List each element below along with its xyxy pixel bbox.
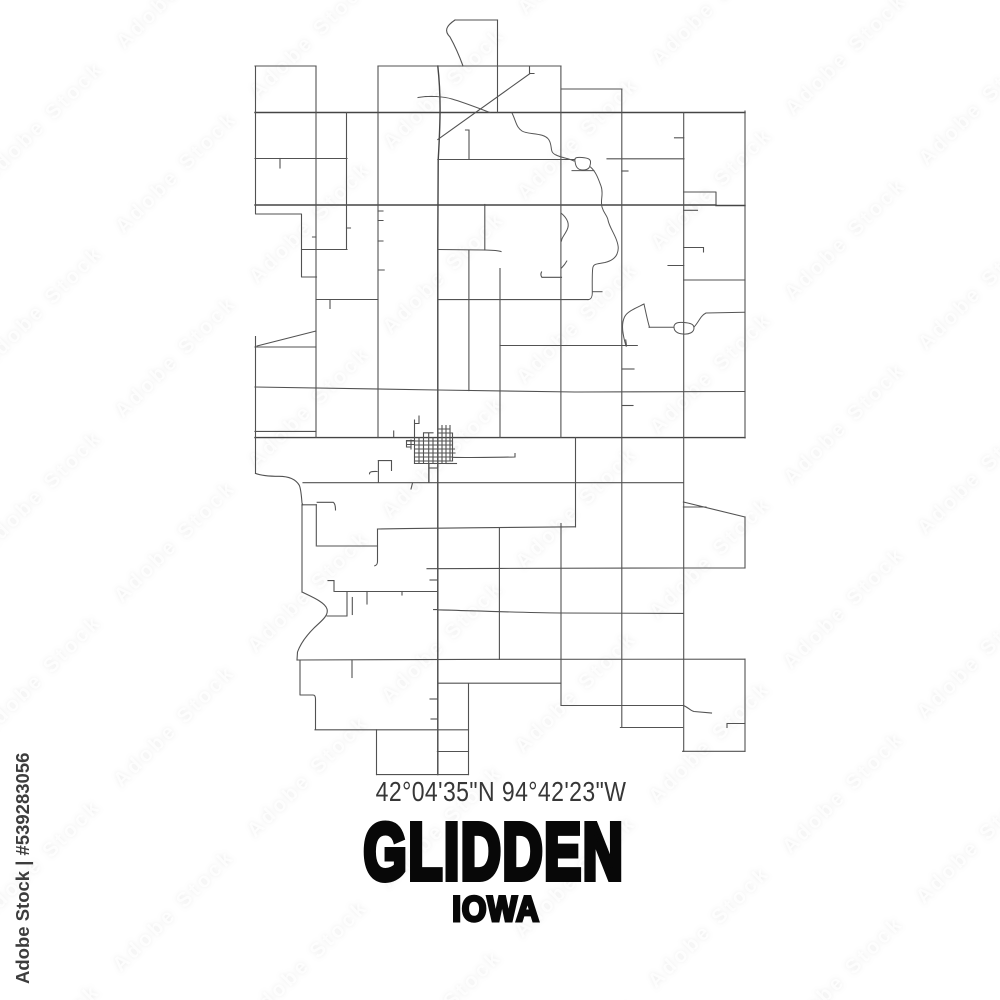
svg-text:Adobe Stock: Adobe Stock — [109, 660, 240, 791]
svg-text:Adobe Stock: Adobe Stock — [912, 592, 1000, 723]
svg-text:Adobe Stock: Adobe Stock — [109, 476, 240, 607]
svg-text:Adobe Stock: Adobe Stock — [513, 0, 644, 19]
svg-text:Adobe Stock: Adobe Stock — [913, 223, 1000, 354]
svg-text:Adobe Stock: Adobe Stock — [0, 241, 108, 372]
svg-text:Adobe Stock: Adobe Stock — [0, 0, 109, 3]
svg-text:Adobe Stock: Adobe Stock — [911, 777, 1000, 908]
svg-text:Adobe Stock: Adobe Stock — [511, 442, 642, 573]
svg-text:Adobe Stock: Adobe Stock — [378, 207, 509, 338]
svg-text:Adobe Stock: Adobe Stock — [913, 408, 1000, 539]
svg-text:Adobe Stock: Adobe Stock — [112, 0, 243, 53]
svg-text:Adobe Stock: Adobe Stock — [0, 0, 109, 3]
svg-text:Adobe Stock: Adobe Stock — [646, 123, 777, 254]
svg-text:Adobe Stock: Adobe Stock — [111, 107, 242, 238]
svg-text:Adobe Stock: Adobe Stock — [110, 291, 241, 422]
svg-text:Adobe Stock: Adobe Stock — [509, 995, 640, 1000]
svg-text:Adobe Stock: Adobe Stock — [0, 426, 107, 557]
svg-text:Adobe Stock: Adobe Stock — [244, 157, 375, 288]
svg-text:Adobe Stock: Adobe Stock — [914, 39, 1000, 170]
svg-text:Adobe Stock: Adobe Stock — [779, 358, 910, 489]
svg-text:Adobe Stock: Adobe Stock — [377, 576, 508, 707]
svg-text:Adobe Stock: Adobe Stock — [645, 492, 776, 623]
svg-text:Adobe Stock: Adobe Stock — [647, 0, 778, 70]
svg-text:Adobe Stock: Adobe Stock — [512, 73, 643, 204]
svg-text:Adobe Stock: Adobe Stock — [244, 341, 375, 472]
svg-text:Adobe Stock: Adobe Stock — [0, 610, 106, 741]
svg-text:Adobe Stock: Adobe Stock — [0, 56, 109, 187]
svg-text:Adobe Stock: Adobe Stock — [780, 173, 911, 304]
svg-text:Adobe Stock: Adobe Stock — [778, 542, 909, 673]
svg-text:Adobe Stock: Adobe Stock — [375, 945, 506, 1000]
svg-text:Adobe Stock: Adobe Stock — [780, 0, 911, 120]
svg-text:Adobe Stock: Adobe Stock — [245, 0, 376, 104]
